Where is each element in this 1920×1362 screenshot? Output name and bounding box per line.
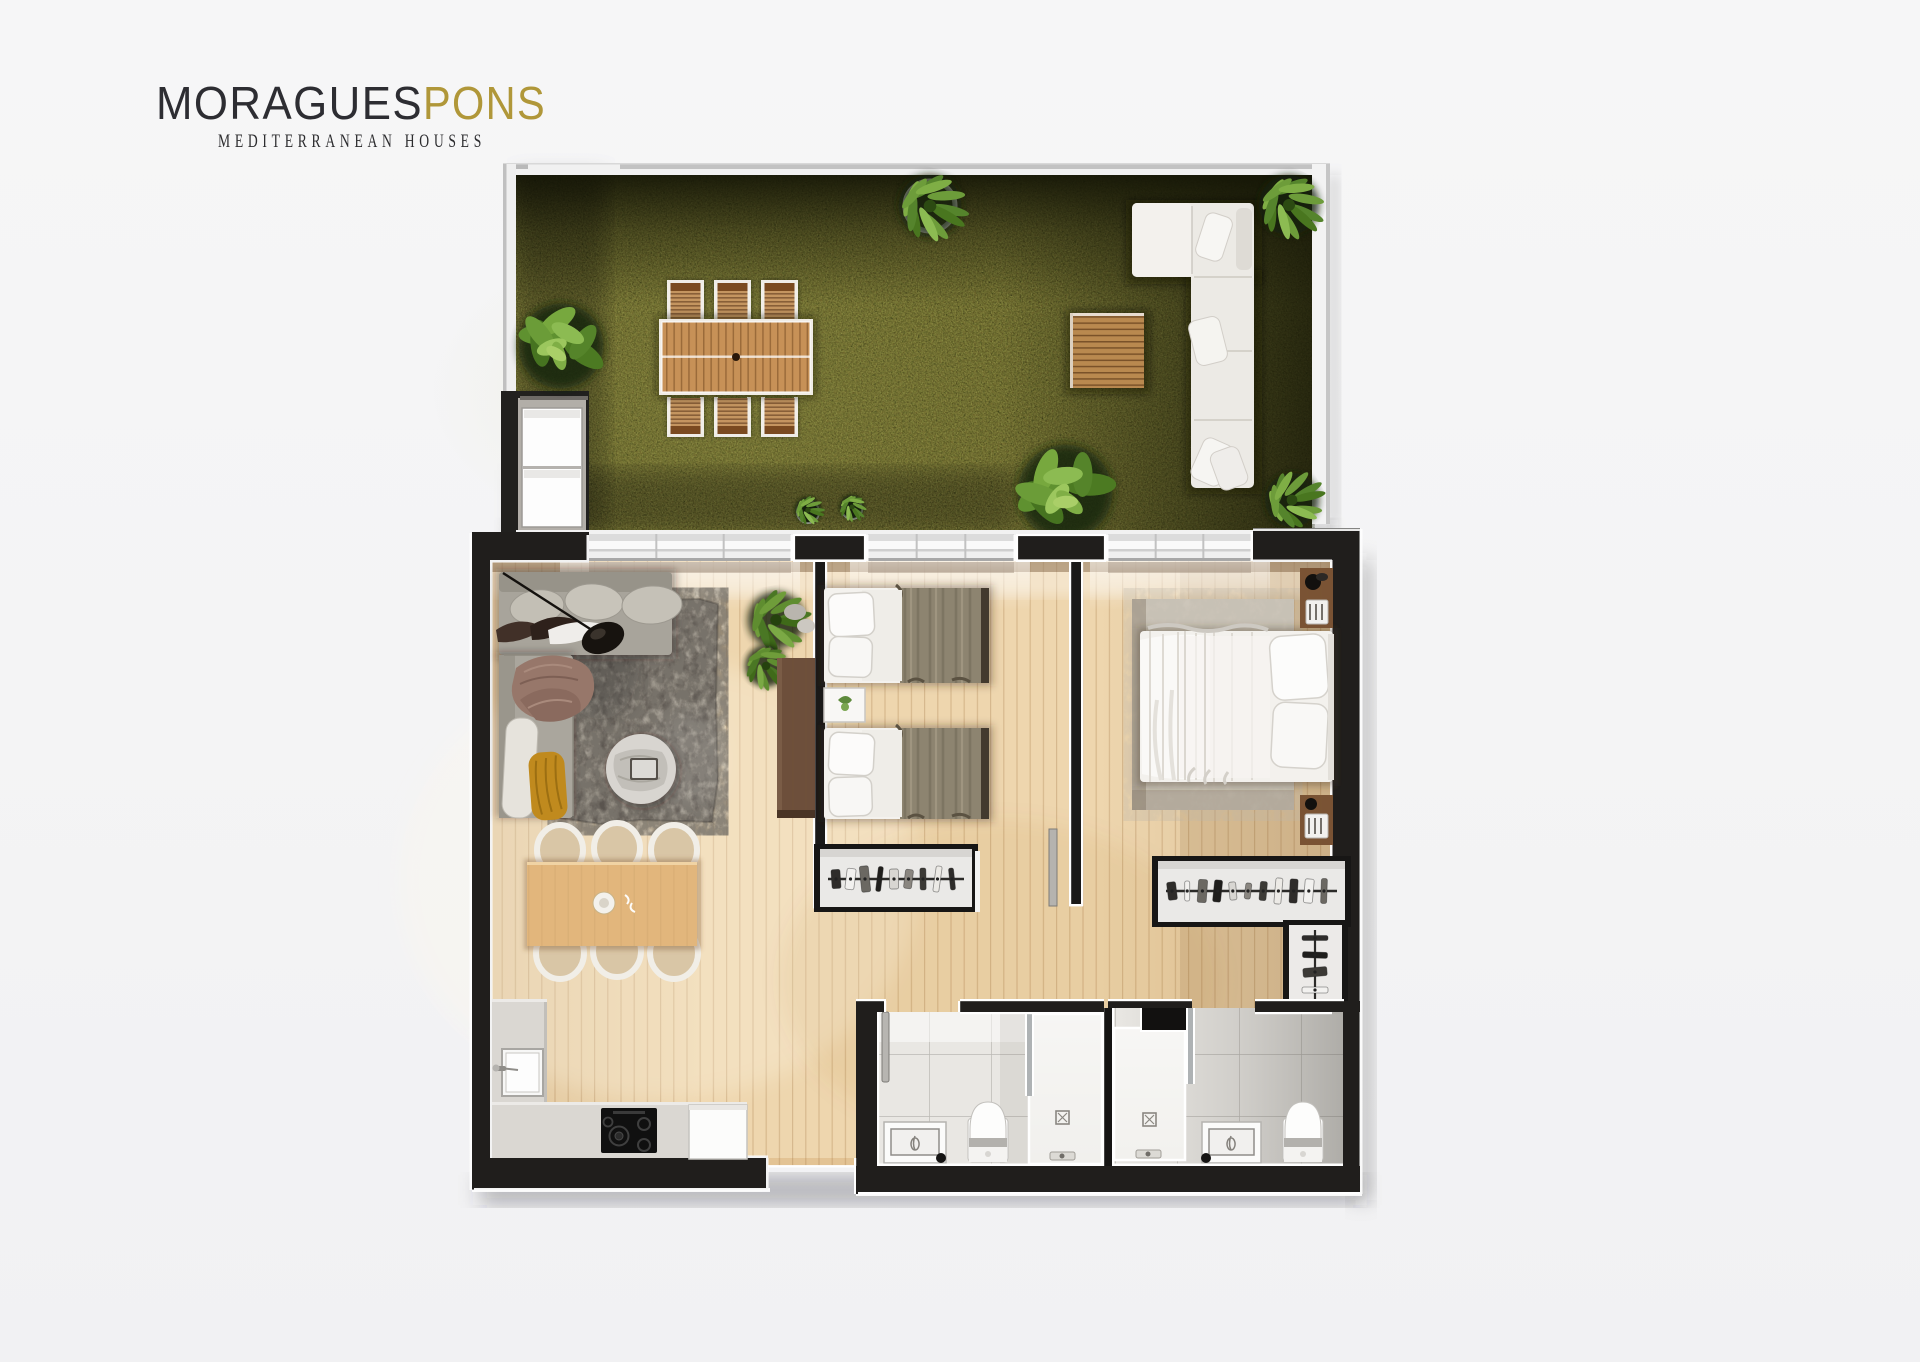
svg-text:PONS: PONS <box>423 77 546 129</box>
svg-text:MEDITERRANEAN HOUSES: MEDITERRANEAN HOUSES <box>218 131 486 152</box>
svg-text:MORAGUES: MORAGUES <box>156 77 423 129</box>
